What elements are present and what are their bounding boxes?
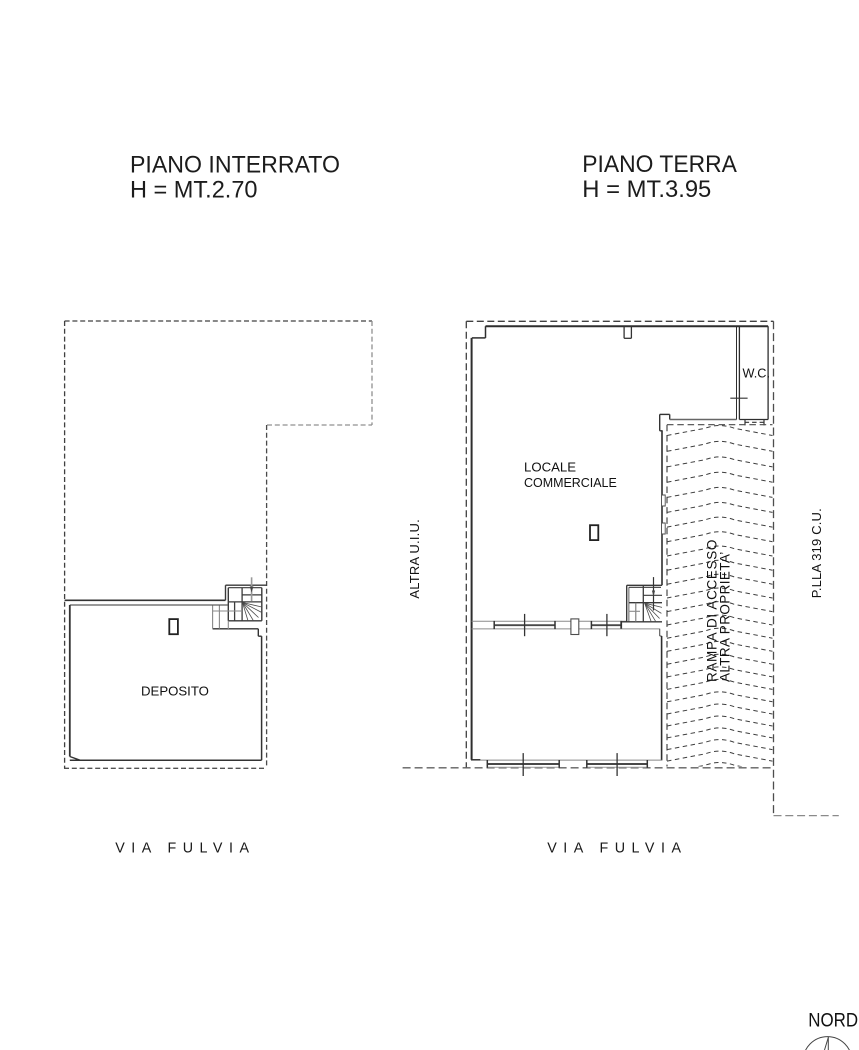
- svg-text:H = MT.2.70: H = MT.2.70: [130, 177, 258, 204]
- svg-text:P.LLA 319 C.U.: P.LLA 319 C.U.: [809, 508, 824, 598]
- svg-text:PIANO TERRA: PIANO TERRA: [582, 151, 737, 178]
- svg-text:ALTRA PROPRIETA’: ALTRA PROPRIETA’: [718, 552, 733, 682]
- svg-text:COMMERCIALE: COMMERCIALE: [524, 475, 617, 490]
- svg-text:VIA FULVIA: VIA FULVIA: [115, 840, 255, 856]
- svg-text:W.C.: W.C.: [743, 366, 771, 381]
- svg-text:DEPOSITO: DEPOSITO: [141, 684, 209, 699]
- svg-text:H = MT.3.95: H = MT.3.95: [582, 176, 711, 203]
- svg-text:PIANO INTERRATO: PIANO INTERRATO: [130, 152, 340, 179]
- svg-text:NORD: NORD: [808, 1009, 858, 1031]
- svg-text:VIA FULVIA: VIA FULVIA: [547, 840, 687, 856]
- svg-text:ALTRA U.I.U.: ALTRA U.I.U.: [407, 519, 422, 598]
- svg-text:LOCALE: LOCALE: [524, 460, 576, 475]
